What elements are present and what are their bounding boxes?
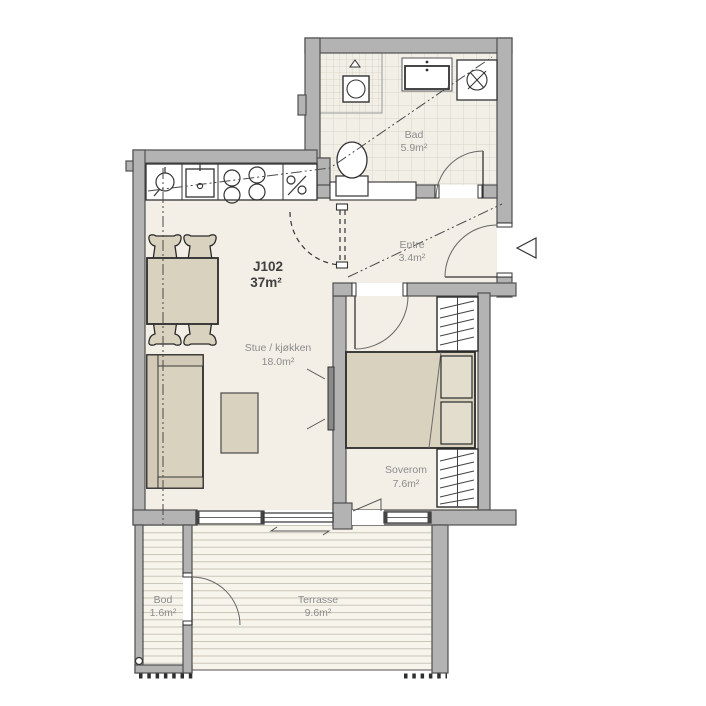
unit-area: 37m² xyxy=(250,275,282,290)
wall-stub-bath-left xyxy=(298,95,306,115)
wall-bod-right-lower xyxy=(183,625,192,673)
svg-text:Entre: Entre xyxy=(399,239,424,251)
wall-entry-bottom-left xyxy=(333,283,352,296)
bathroom-door-jamb xyxy=(478,185,482,198)
window-living xyxy=(196,511,264,524)
bedroom-door-jamb xyxy=(352,283,356,296)
wall-living-bedroom xyxy=(333,296,346,510)
svg-text:9.6m²: 9.6m² xyxy=(305,607,332,619)
floor-plan-page: J102 37m² Bad 5.9m² Entre 3.4m² Stue / k… xyxy=(0,0,706,706)
window-bedroom xyxy=(384,512,431,523)
wall-bath-left-upper xyxy=(305,38,320,165)
kitchen xyxy=(146,163,317,203)
svg-text:Stue / kjøkken: Stue / kjøkken xyxy=(245,342,312,354)
wardrobe-top xyxy=(437,297,478,351)
wall-bath-bottom-right xyxy=(482,185,497,198)
wall-bod-right-upper xyxy=(183,525,192,573)
wall-terrace-right xyxy=(432,525,448,673)
svg-text:Soverom: Soverom xyxy=(385,464,427,476)
unit-id: J102 xyxy=(253,259,283,274)
wall-right-upper xyxy=(497,38,512,223)
door-frame-mark xyxy=(337,204,348,210)
entry-door-opening xyxy=(497,223,512,277)
wall-bod-left xyxy=(135,525,143,673)
svg-text:3.4m²: 3.4m² xyxy=(399,252,426,264)
wall-bedroom-right xyxy=(478,293,490,510)
wardrobe-bottom xyxy=(437,449,478,507)
bed xyxy=(346,352,475,448)
toilet-cistern xyxy=(336,176,368,196)
svg-text:18.0m²: 18.0m² xyxy=(262,356,295,368)
svg-text:Bad: Bad xyxy=(405,129,424,141)
bod-door-jamb xyxy=(183,573,192,577)
coffee-table xyxy=(221,393,258,453)
pillow xyxy=(441,402,472,444)
wall-bottom-left xyxy=(133,510,197,525)
svg-text:1.6m²: 1.6m² xyxy=(150,607,177,619)
drain-pipe-icon xyxy=(136,658,143,665)
unit-label: J102 37m² xyxy=(250,259,283,290)
wall-pillar xyxy=(333,503,352,529)
door-frame-mark xyxy=(337,262,348,268)
bedroom-terrace-door-opening xyxy=(352,510,384,525)
svg-text:Terrasse: Terrasse xyxy=(298,594,338,606)
bod-door-jamb xyxy=(183,621,192,625)
entrance-arrow-icon xyxy=(517,238,536,258)
svg-text:7.6m²: 7.6m² xyxy=(393,478,420,490)
bedroom-door-opening xyxy=(352,283,407,296)
wall-bath-top xyxy=(305,38,512,53)
floor-plan-drawing: J102 37m² Bad 5.9m² Entre 3.4m² Stue / k… xyxy=(0,0,706,706)
wall-left xyxy=(133,150,145,525)
sofa-backrest xyxy=(147,355,158,488)
entry-door-jamb xyxy=(497,223,512,227)
sofa-armrest xyxy=(158,355,203,366)
bathroom-door-opening xyxy=(435,185,482,198)
bod-door-opening xyxy=(183,573,192,625)
pillow xyxy=(441,356,472,398)
bedroom-door-jamb xyxy=(403,283,407,296)
wall-kitchen-top xyxy=(133,150,317,163)
washing-machine-icon xyxy=(457,60,497,100)
svg-text:Bod: Bod xyxy=(154,594,173,606)
wall-stub-left xyxy=(126,161,133,171)
svg-text:5.9m²: 5.9m² xyxy=(401,142,428,154)
room-label-entre: Entre 3.4m² xyxy=(399,239,426,264)
vanity-sink xyxy=(402,58,452,91)
sofa xyxy=(147,355,203,488)
entry-door-jamb xyxy=(497,273,512,277)
sofa-armrest xyxy=(158,477,203,488)
dining-table xyxy=(147,258,218,324)
wall-entry-bottom-right xyxy=(407,283,516,296)
